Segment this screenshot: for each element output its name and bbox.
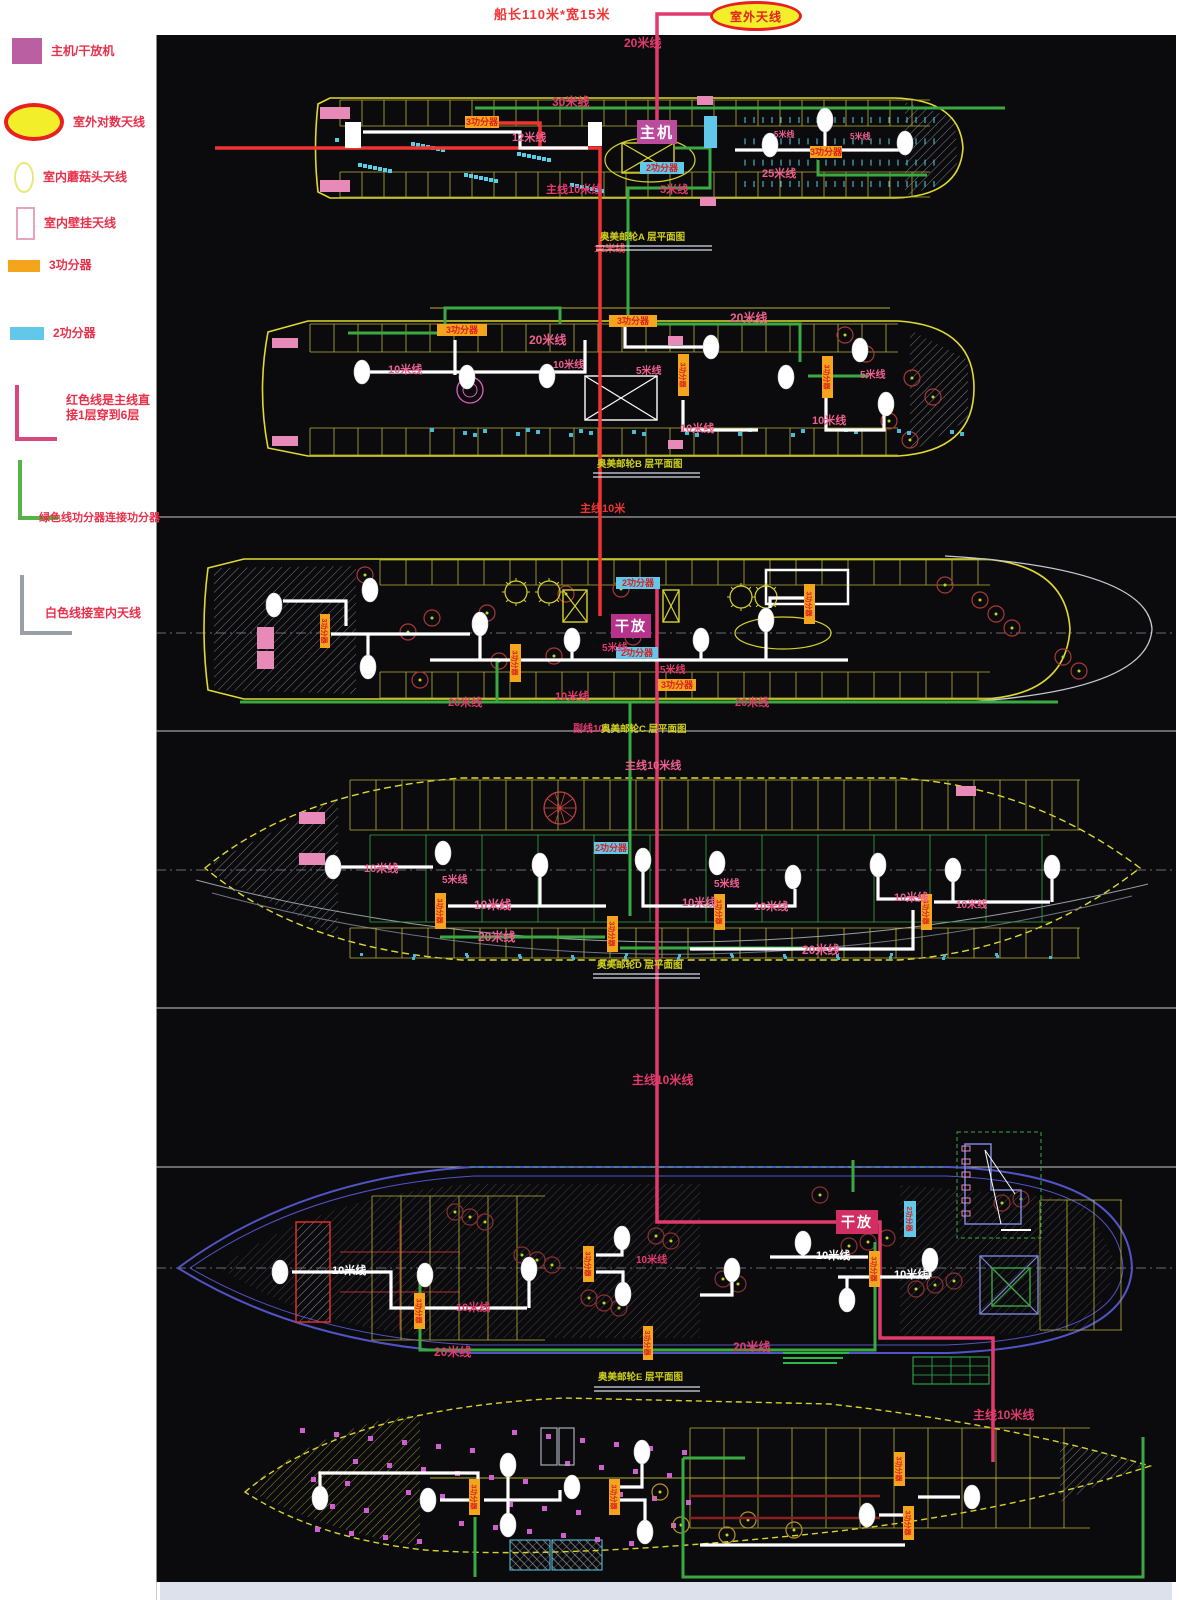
mushroom-antenna xyxy=(724,1258,740,1282)
wall-antenna xyxy=(345,122,361,148)
mushroom-antenna xyxy=(417,1263,433,1287)
svg-text:2功分器: 2功分器 xyxy=(595,842,628,853)
outdoor-antenna-icon xyxy=(4,103,64,141)
cable-length-label: 10米线 xyxy=(553,358,584,371)
mushroom-antenna xyxy=(878,392,894,416)
cable-length-label: 10米线 xyxy=(474,897,511,912)
cable-length-label: 10米线 xyxy=(555,689,589,703)
svg-text:3功分器: 3功分器 xyxy=(511,651,520,677)
mushroom-antenna xyxy=(693,628,709,652)
mushroom-antenna xyxy=(564,1475,580,1499)
cable-length-label: 5米线 xyxy=(602,641,628,654)
mushroom-antenna xyxy=(435,841,451,865)
deck-caption: 奥美邮轮E 层平面图 xyxy=(597,1371,683,1383)
mushroom-antenna xyxy=(564,628,580,652)
deck-caption: 奥美邮轮A 层平面图 xyxy=(599,231,685,243)
legend-item-green-line: 绿色线功分器连接功分器 xyxy=(18,460,179,520)
cable-length-label: 20米线 xyxy=(735,695,769,709)
cable-length-label: 20米线 xyxy=(529,332,566,347)
mushroom-antenna xyxy=(785,865,801,889)
ship-size-label: 船长110米*宽15米 xyxy=(494,4,611,23)
mushroom-antenna xyxy=(521,1257,537,1281)
cable-length-label: 5米线 xyxy=(636,364,662,377)
cable-length-label: 10米线 xyxy=(456,1300,490,1314)
cable-length-label: 10米线 xyxy=(956,898,987,911)
mushroom-antenna xyxy=(532,853,548,877)
mushroom-antenna xyxy=(964,1485,980,1509)
mushroom-antenna xyxy=(839,1288,855,1312)
cable-length-label: 5米线 xyxy=(774,129,794,139)
mushroom-antenna xyxy=(870,853,886,877)
svg-text:2功分器: 2功分器 xyxy=(905,1207,914,1233)
mushroom-antenna xyxy=(852,338,868,362)
svg-text:3功分器: 3功分器 xyxy=(470,1485,479,1511)
cable-length-label: 10米线 xyxy=(636,1253,667,1266)
cable-length-label: 20米线 xyxy=(448,695,482,709)
mushroom-antenna xyxy=(897,131,913,155)
outdoor-antenna-callout: 室外天线 xyxy=(710,1,802,31)
svg-text:3功分器: 3功分器 xyxy=(679,363,688,389)
deck-caption: 奥美邮轮B 层平面图 xyxy=(596,458,683,470)
cable-length-label: 主线10米线 xyxy=(625,758,681,772)
mushroom-antenna xyxy=(709,851,725,875)
splitter2-icon xyxy=(10,327,44,340)
svg-text:2功分器: 2功分器 xyxy=(646,162,679,173)
mushroom-antenna xyxy=(354,360,370,384)
cable-length-label: 主线10米线 xyxy=(973,1407,1034,1422)
svg-text:干放: 干放 xyxy=(841,1214,873,1230)
cable-length-label: 主线10米 xyxy=(580,501,626,515)
svg-text:3功分器: 3功分器 xyxy=(466,116,499,127)
splitter3-icon xyxy=(8,260,40,272)
svg-text:3功分器: 3功分器 xyxy=(643,1331,652,1357)
cable-length-label: 10米线 xyxy=(894,890,928,904)
svg-text:3功分器: 3功分器 xyxy=(584,1252,593,1278)
mushroom-antenna xyxy=(472,612,488,636)
cable-length-label: 12米线 xyxy=(594,242,625,255)
legend-item-host: 主机/干放机 xyxy=(12,38,114,64)
mushroom-antenna xyxy=(795,1231,811,1255)
mushroom-antenna xyxy=(360,655,376,679)
mushroom-antenna xyxy=(500,1513,516,1537)
legend-item-splitter3: 3功分器 xyxy=(8,258,92,273)
cable-length-label: 5米线 xyxy=(850,131,870,141)
svg-text:3功分器: 3功分器 xyxy=(805,592,814,618)
svg-text:3功分器: 3功分器 xyxy=(810,146,843,157)
legend-item-white-line: 白色线接室内天线 xyxy=(20,575,165,635)
legend: 主机/干放机 室外对数天线 室内蘑菇头天线 室内壁挂天线 3功分器 2功分器 红… xyxy=(0,0,156,1600)
mushroom-antenna xyxy=(272,1260,288,1284)
mushroom-antenna xyxy=(778,365,794,389)
svg-text:3功分器: 3功分器 xyxy=(895,1457,904,1483)
cable-length-label: 10米线 xyxy=(812,413,846,427)
svg-text:3功分器: 3功分器 xyxy=(610,1485,619,1511)
cable-length-label: 10米线 xyxy=(364,861,398,875)
host-swatch-icon xyxy=(12,38,42,64)
mushroom-antenna xyxy=(615,1282,631,1306)
outdoor-antenna-label: 室外天线 xyxy=(730,8,782,25)
mushroom-antenna xyxy=(362,578,378,602)
cable-length-label: 10米线 xyxy=(388,362,422,376)
legend-item-splitter2: 2功分器 xyxy=(10,326,96,341)
cable-length-label: 10米线 xyxy=(816,1248,850,1262)
mushroom-antenna-icon xyxy=(14,162,34,193)
svg-text:3功分器: 3功分器 xyxy=(436,899,445,925)
cable-length-label: 20米线 xyxy=(434,1344,471,1359)
cable-length-label: 5米线 xyxy=(442,873,468,886)
cable-length-label: 5米线 xyxy=(714,877,740,890)
svg-text:主机: 主机 xyxy=(640,123,674,141)
cable-length-label: 主线10米线 xyxy=(546,182,602,196)
cable-length-label: 20米线 xyxy=(733,1339,770,1354)
mushroom-antenna xyxy=(312,1486,328,1510)
svg-text:3功分器: 3功分器 xyxy=(320,619,329,645)
deck-caption: 奥美邮轮D 层平面图 xyxy=(596,959,683,971)
cable-length-label: 20米线 xyxy=(802,942,839,957)
svg-text:2功分器: 2功分器 xyxy=(622,577,655,588)
ship-deck-drawing: 3功分器3功分器3功分器3功分器3功分器3功分器3功分器3功分器3功分器3功分器… xyxy=(0,0,1182,1600)
mushroom-antenna xyxy=(945,858,961,882)
cable-length-label: 20米线 xyxy=(624,35,661,50)
wall-antenna-icon xyxy=(16,207,35,240)
mushroom-antenna xyxy=(637,1520,653,1544)
cable-length-label: 5米线 xyxy=(860,368,886,381)
cable-length-label: 20米线 xyxy=(730,310,767,325)
svg-text:3功分器: 3功分器 xyxy=(415,1299,424,1325)
wall-antenna xyxy=(588,122,602,146)
cable-length-label: 30米线 xyxy=(552,94,589,109)
green-line-icon xyxy=(18,460,58,520)
legend-item-outdoor-antenna: 室外对数天线 xyxy=(4,103,145,141)
mushroom-antenna xyxy=(459,365,475,389)
svg-text:3功分器: 3功分器 xyxy=(904,1511,913,1537)
mushroom-antenna xyxy=(325,855,341,879)
mushroom-antenna xyxy=(703,335,719,359)
cable-length-label: 10米线 xyxy=(682,895,716,909)
svg-text:3功分器: 3功分器 xyxy=(446,324,479,335)
cable-length-label: 25米线 xyxy=(762,166,796,180)
mushroom-antenna xyxy=(1044,855,1060,879)
cable-length-label: 5米线 xyxy=(660,663,686,676)
svg-text:3功分器: 3功分器 xyxy=(608,922,617,948)
cable-length-label: 12米线 xyxy=(512,130,546,144)
cable-length-label: 5米线 xyxy=(660,182,688,196)
mushroom-antenna xyxy=(758,608,774,632)
white-line-icon xyxy=(20,575,72,635)
svg-text:3功分器: 3功分器 xyxy=(661,679,694,690)
cable-length-label: 副线10 xyxy=(573,722,605,735)
legend-item-mushroom-antenna: 室内蘑菇头天线 xyxy=(14,162,127,193)
svg-text:干放: 干放 xyxy=(615,618,647,634)
cable-length-label: 10米线 xyxy=(754,899,788,913)
legend-item-red-line: 红色线是主线直 接1层穿到6层 xyxy=(15,385,150,441)
mushroom-antenna xyxy=(817,108,833,132)
mushroom-antenna xyxy=(266,593,282,617)
mushroom-antenna xyxy=(634,1440,650,1464)
cable-length-label: 10米线 xyxy=(894,1267,928,1281)
legend-item-wall-antenna: 室内壁挂天线 xyxy=(16,207,116,240)
mushroom-antenna xyxy=(420,1488,436,1512)
red-line-icon xyxy=(15,385,57,441)
deck-caption: 奥美邮轮C 层平面图 xyxy=(600,723,687,735)
svg-text:3功分器: 3功分器 xyxy=(617,315,650,326)
cable-length-label: 10米线 xyxy=(680,421,714,435)
cable-length-label: 10米线 xyxy=(332,1263,366,1277)
splitter2-box xyxy=(704,116,717,148)
cad-viewport: 3功分器3功分器3功分器3功分器3功分器3功分器3功分器3功分器3功分器3功分器… xyxy=(0,0,1182,1600)
mushroom-antenna xyxy=(614,1226,630,1250)
svg-text:3功分器: 3功分器 xyxy=(823,365,832,391)
mushroom-antenna xyxy=(635,848,651,872)
svg-text:3功分器: 3功分器 xyxy=(870,1257,879,1283)
mushroom-antenna xyxy=(500,1453,516,1477)
cable-length-label: 20米线 xyxy=(478,929,515,944)
cable-length-label: 主线10米线 xyxy=(632,1072,693,1087)
mushroom-antenna xyxy=(859,1503,875,1527)
